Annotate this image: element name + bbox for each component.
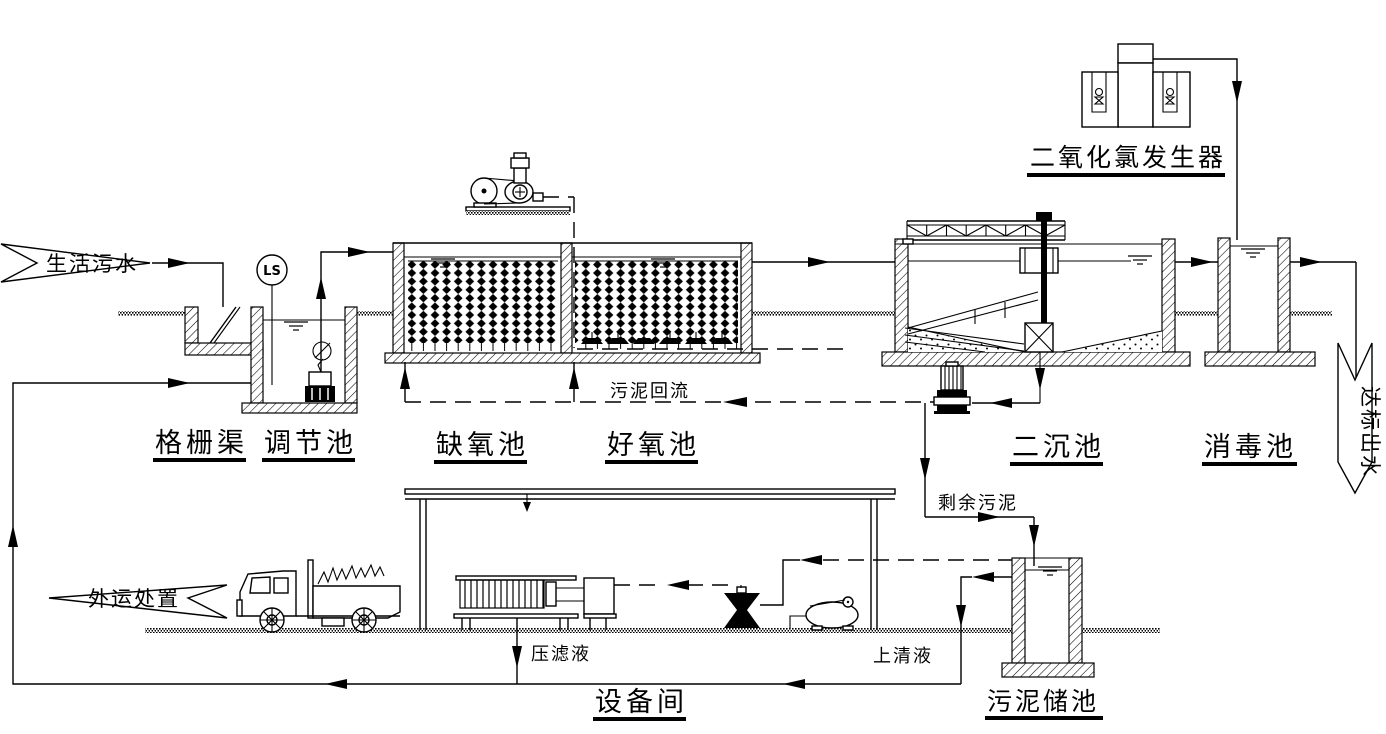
label-sludge-return: 污泥回流 xyxy=(610,381,690,402)
influent-banner-label: 生活污水 xyxy=(46,252,138,276)
submersible-pump-icon xyxy=(309,372,331,386)
arrow-left xyxy=(723,397,747,407)
arrow-right xyxy=(348,247,370,257)
disposal-banner-label: 外运处置 xyxy=(88,587,180,611)
label-supernatant: 上清液 xyxy=(873,646,933,667)
excess-sludge-line xyxy=(920,403,1039,566)
arrow-up xyxy=(569,367,579,389)
diagram-canvas: 生活污水 LS xyxy=(0,0,1386,734)
effluent-banner-label: 达标出水 xyxy=(1358,386,1382,478)
label-secondary-clarifier: 二沉池 xyxy=(1012,432,1105,463)
label-excess-sludge: 剩余污泥 xyxy=(938,493,1018,514)
arrow-right xyxy=(168,258,190,268)
screw-pump xyxy=(790,597,858,630)
arrow-left xyxy=(325,679,347,689)
sludge-load-icon xyxy=(318,565,384,584)
influent-banner: 生活污水 xyxy=(1,244,223,307)
sludge-return-pump xyxy=(934,362,970,414)
label-aerobic-tank: 好氧池 xyxy=(607,430,700,461)
arrow-left xyxy=(972,572,994,582)
arrow-right xyxy=(168,378,190,388)
label-regulating-tank: 调节池 xyxy=(264,428,357,459)
roof-marker-icon xyxy=(523,502,531,512)
label-anoxic-tank: 缺氧池 xyxy=(436,430,529,461)
arrow-down xyxy=(920,458,930,480)
scraper-drive-icon xyxy=(1036,212,1052,221)
label-clo2-generator: 二氧化氯发生器 xyxy=(1030,143,1226,172)
secondary-clarifier xyxy=(752,212,1218,366)
arrow-down xyxy=(1029,525,1039,547)
arrow-up xyxy=(400,367,410,389)
arrow-up xyxy=(8,525,18,547)
unit-labels: 格栅渠 调节池 缺氧池 好氧池 二沉池 消毒池 二氧化氯发生器 设备间 污泥储池 xyxy=(153,143,1297,721)
aerobic-media xyxy=(575,261,738,343)
regulating-tank: LS xyxy=(242,247,393,413)
label-grid-channel: 格栅渠 xyxy=(155,428,248,459)
arrow-down xyxy=(512,646,522,668)
arrow-right xyxy=(1300,257,1322,267)
arrow-left xyxy=(800,555,822,565)
label-disinfection-tank: 消毒池 xyxy=(1204,432,1297,463)
effluent-banner: 达标出水 xyxy=(1338,343,1382,493)
arrow-down xyxy=(1035,368,1045,390)
filtrate-line xyxy=(512,618,522,684)
arrow-right xyxy=(808,257,830,267)
diaphragm-pump xyxy=(614,580,760,628)
anoxic-aerobic-tanks xyxy=(385,243,845,363)
arrow-down xyxy=(1232,81,1242,103)
clo2-generator xyxy=(1082,44,1242,240)
level-switch-tag: LS xyxy=(263,264,281,279)
arrow-left xyxy=(990,398,1012,408)
disposal-banner: 外运处置 xyxy=(49,585,227,618)
label-sludge-storage: 污泥储池 xyxy=(987,687,1099,716)
anoxic-media xyxy=(408,261,558,343)
sludge-truck xyxy=(237,560,400,632)
plant-return-line xyxy=(8,378,961,689)
label-equipment-room: 设备间 xyxy=(595,687,688,718)
clarifier-bridge-truss xyxy=(903,221,1065,244)
arrow-right xyxy=(1191,257,1213,267)
arrow-left xyxy=(667,580,689,590)
arrow-left xyxy=(783,679,805,689)
disinfection-tank xyxy=(1205,238,1356,378)
plate-filter-press xyxy=(454,576,616,630)
arrow-down xyxy=(956,605,966,627)
arrow-up xyxy=(316,277,326,299)
stream-labels: 污泥回流 剩余污泥 压滤液 上清液 xyxy=(531,381,1018,667)
process-flow-diagram: 生活污水 LS xyxy=(0,0,1386,734)
label-filtrate: 压滤液 xyxy=(531,644,591,665)
